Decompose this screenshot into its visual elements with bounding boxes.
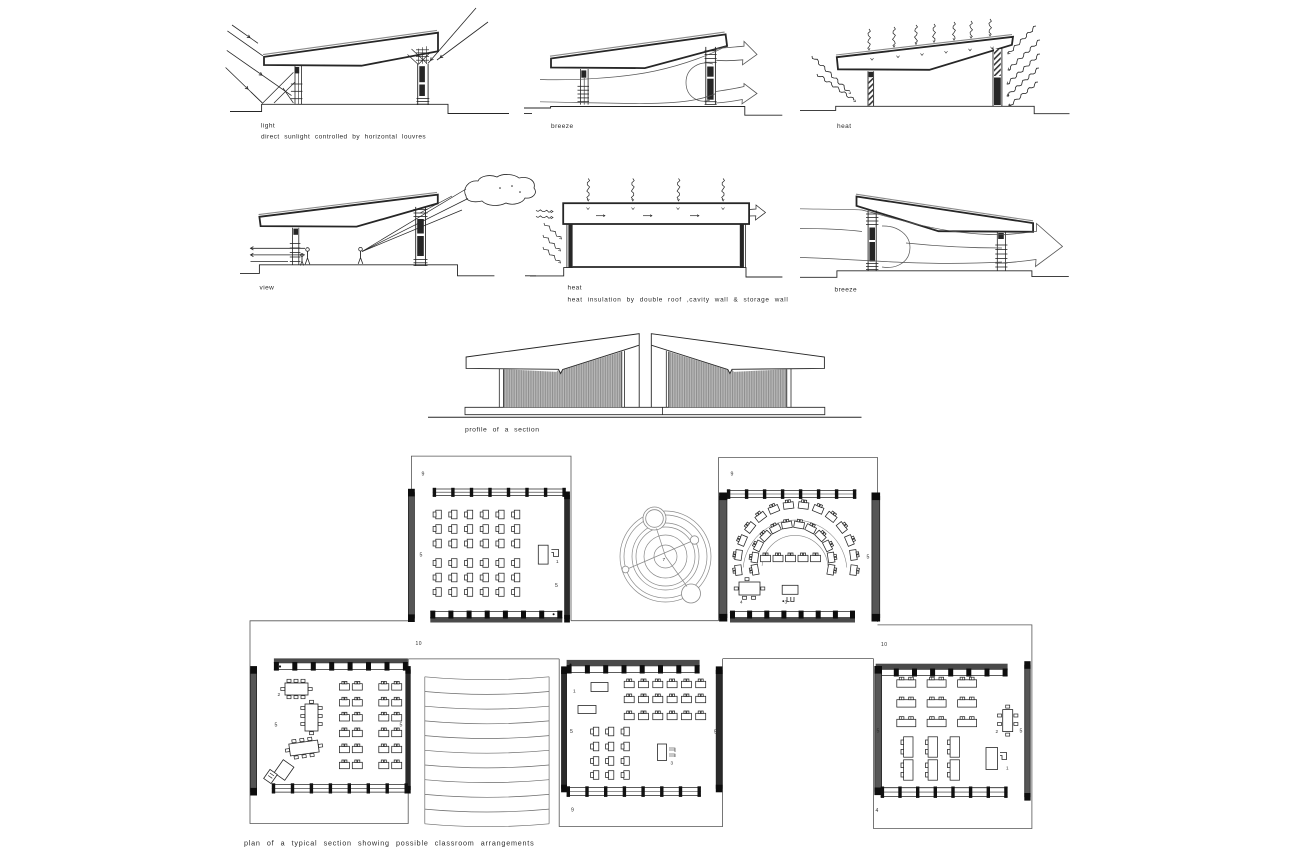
svg-text:heat: heat <box>568 285 582 292</box>
svg-text:2: 2 <box>278 692 281 698</box>
svg-text:3: 3 <box>671 761 674 766</box>
svg-text:9: 9 <box>731 472 734 478</box>
svg-text:3: 3 <box>785 600 788 605</box>
svg-text:plan of a typical section show: plan of a typical section showing possib… <box>244 839 534 848</box>
svg-text:5: 5 <box>420 553 423 559</box>
svg-text:5: 5 <box>570 729 573 735</box>
svg-text:5: 5 <box>714 730 717 736</box>
svg-text:9: 9 <box>571 808 574 814</box>
svg-text:heat insulation by double roof: heat insulation by double roof ,cavity w… <box>568 297 789 304</box>
svg-text:5: 5 <box>400 723 403 729</box>
svg-text:5: 5 <box>733 555 736 561</box>
svg-text:view: view <box>260 285 275 292</box>
svg-text:5: 5 <box>555 583 558 589</box>
svg-text:light: light <box>261 123 275 130</box>
svg-text:10: 10 <box>416 641 422 647</box>
svg-text:9: 9 <box>422 472 425 478</box>
svg-text:breeze: breeze <box>835 287 858 294</box>
svg-text:5: 5 <box>1020 729 1023 735</box>
svg-text:4: 4 <box>740 600 743 605</box>
svg-text:heat: heat <box>837 123 851 130</box>
svg-text:profile of a section: profile of a section <box>465 427 540 434</box>
svg-text:4: 4 <box>876 808 879 814</box>
svg-text:5: 5 <box>877 729 880 735</box>
svg-text:5: 5 <box>275 723 278 729</box>
svg-text:2: 2 <box>996 729 999 734</box>
svg-text:7: 7 <box>663 557 666 563</box>
svg-text:1: 1 <box>573 689 576 695</box>
svg-text:direct sunlight controlled by: direct sunlight controlled by horizontal… <box>261 134 426 141</box>
svg-text:1: 1 <box>556 559 559 564</box>
svg-text:10: 10 <box>881 642 887 648</box>
svg-text:1: 1 <box>1006 766 1009 771</box>
svg-text:breeze: breeze <box>551 123 574 130</box>
svg-text:5: 5 <box>867 555 870 561</box>
